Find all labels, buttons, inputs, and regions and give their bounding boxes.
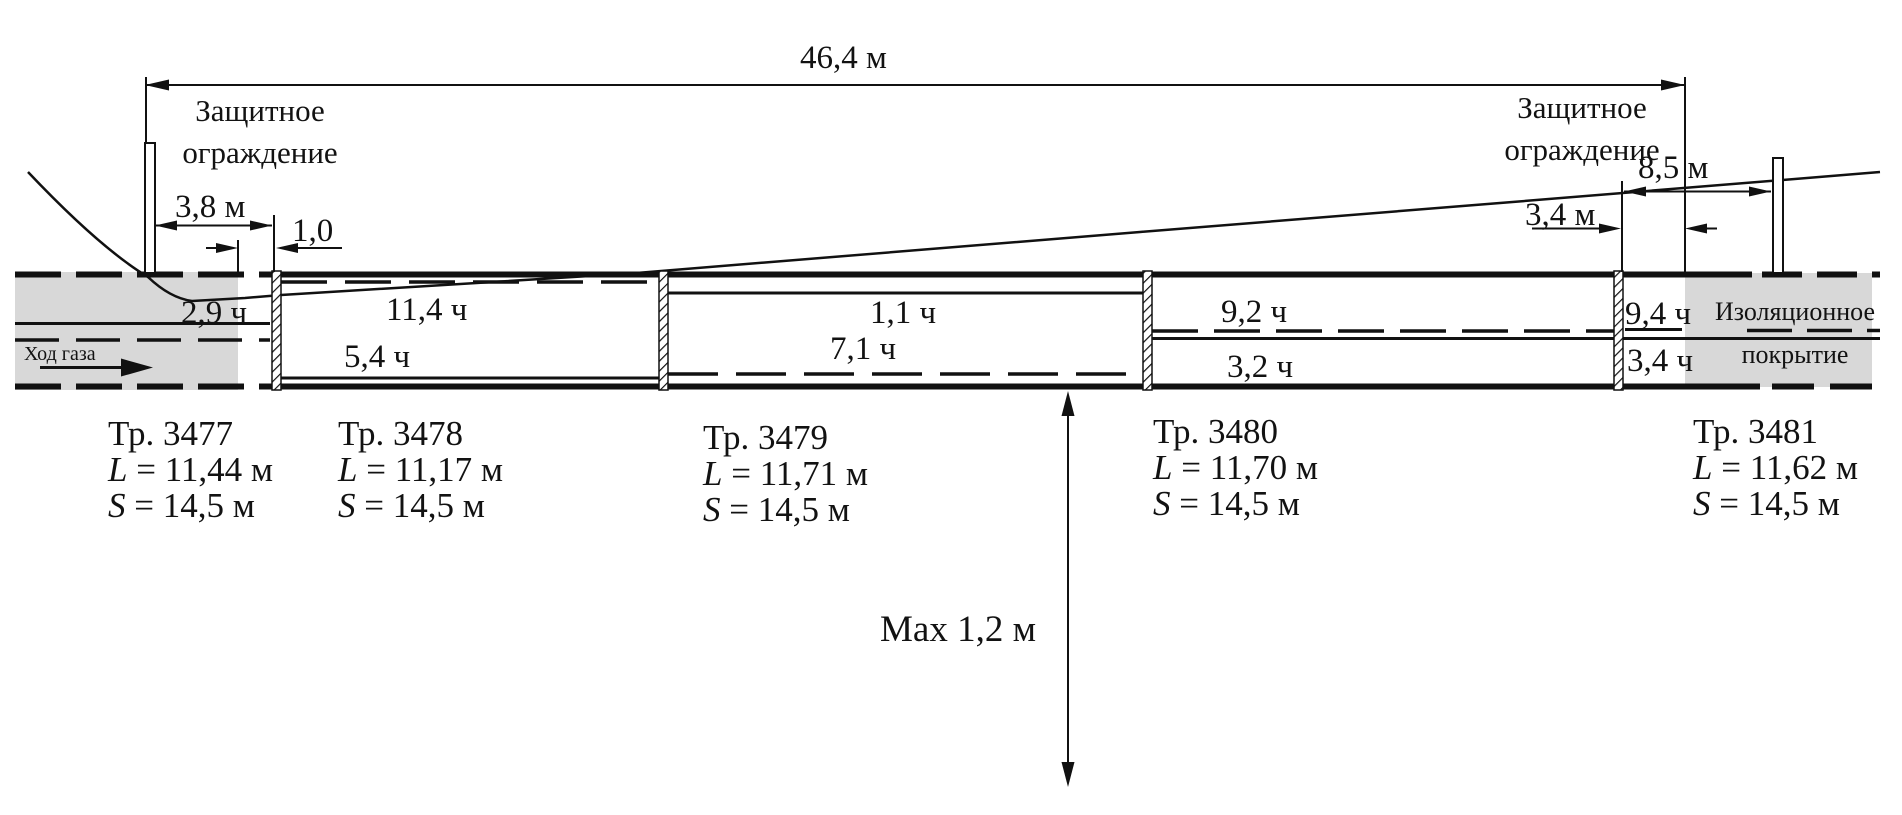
pipe-name: Тр. 3478 (338, 416, 503, 452)
hours-3478-bottom: 5,4 ч (344, 339, 410, 375)
weld-joint-4 (1614, 271, 1623, 390)
hours-3481-bottom: 3,4 ч (1627, 343, 1693, 379)
hours-3477: 2,9 ч (181, 295, 247, 331)
pipe-label-3480: Тр. 3480 L = 11,70 м S = 14,5 м (1153, 414, 1318, 522)
weld-joint-3 (1143, 271, 1152, 390)
gas-flow-label: Ход газа (24, 343, 96, 365)
pipe-name: Тр. 3479 (703, 420, 868, 456)
pipe-span: S = 14,5 м (703, 492, 868, 528)
max-depth-arrow (1062, 391, 1075, 787)
pipe-label-3478: Тр. 3478 L = 11,17 м S = 14,5 м (338, 416, 503, 524)
fence-label-left-line1: Защитное (155, 90, 365, 132)
pipe-name: Тр. 3477 (108, 416, 273, 452)
insulation-label-line1: Изоляционное (1700, 298, 1890, 327)
fence-post-right (1773, 158, 1783, 273)
fence-label-left: Защитное ограждение (155, 90, 365, 174)
pipe-name: Тр. 3480 (1153, 414, 1318, 450)
fence-post-left (145, 143, 155, 273)
pipe-length: L = 11,71 м (703, 456, 868, 492)
pipe-name: Тр. 3481 (1693, 414, 1858, 450)
insulation-label-line2: покрытие (1700, 341, 1890, 370)
pipe-lines-3478 (281, 282, 660, 378)
pipe-span: S = 14,5 м (338, 488, 503, 524)
dim-right-offset-label: 8,5 м (1638, 150, 1708, 186)
pipe-label-3479: Тр. 3479 L = 11,71 м S = 14,5 м (703, 420, 868, 528)
weld-joint-2 (659, 271, 668, 390)
hours-3480-bottom: 3,2 ч (1227, 349, 1293, 385)
fence-label-left-line2: ограждение (155, 132, 365, 174)
max-depth-label: Max 1,2 м (880, 610, 1036, 651)
hours-3480-top: 9,2 ч (1221, 294, 1287, 330)
pipe-lines-3480 (1152, 331, 1615, 339)
dim-overall (145, 77, 1685, 272)
hours-3481-top: 9,4 ч (1625, 296, 1691, 332)
dim-left-offset-label: 3,8 м (175, 189, 245, 225)
pipe-span: S = 14,5 м (1153, 486, 1318, 522)
dim-right-gap-label: 3,4 м (1525, 197, 1595, 233)
pipe-length: L = 11,62 м (1693, 450, 1858, 486)
hours-3479-bottom: 7,1 ч (830, 331, 896, 367)
dim-overall-label: 46,4 м (800, 40, 887, 76)
pipe-length: L = 11,44 м (108, 452, 273, 488)
pipe-label-3481: Тр. 3481 L = 11,62 м S = 14,5 м (1693, 414, 1858, 522)
hours-3479-top: 1,1 ч (870, 295, 936, 331)
hours-3478-top: 11,4 ч (386, 292, 467, 328)
pipeline-trench-diagram: 46,4 м Защитное ограждение Защитное огра… (0, 0, 1902, 815)
pipe-length: L = 11,17 м (338, 452, 503, 488)
weld-joint-1 (272, 271, 281, 390)
pipe-length: L = 11,70 м (1153, 450, 1318, 486)
pipe-span: S = 14,5 м (1693, 486, 1858, 522)
pipe-label-3477: Тр. 3477 L = 11,44 м S = 14,5 м (108, 416, 273, 524)
dim-left-gap-label: 1,0 (292, 213, 333, 249)
pipe-span: S = 14,5 м (108, 488, 273, 524)
fence-label-right-line1: Защитное (1477, 87, 1687, 129)
